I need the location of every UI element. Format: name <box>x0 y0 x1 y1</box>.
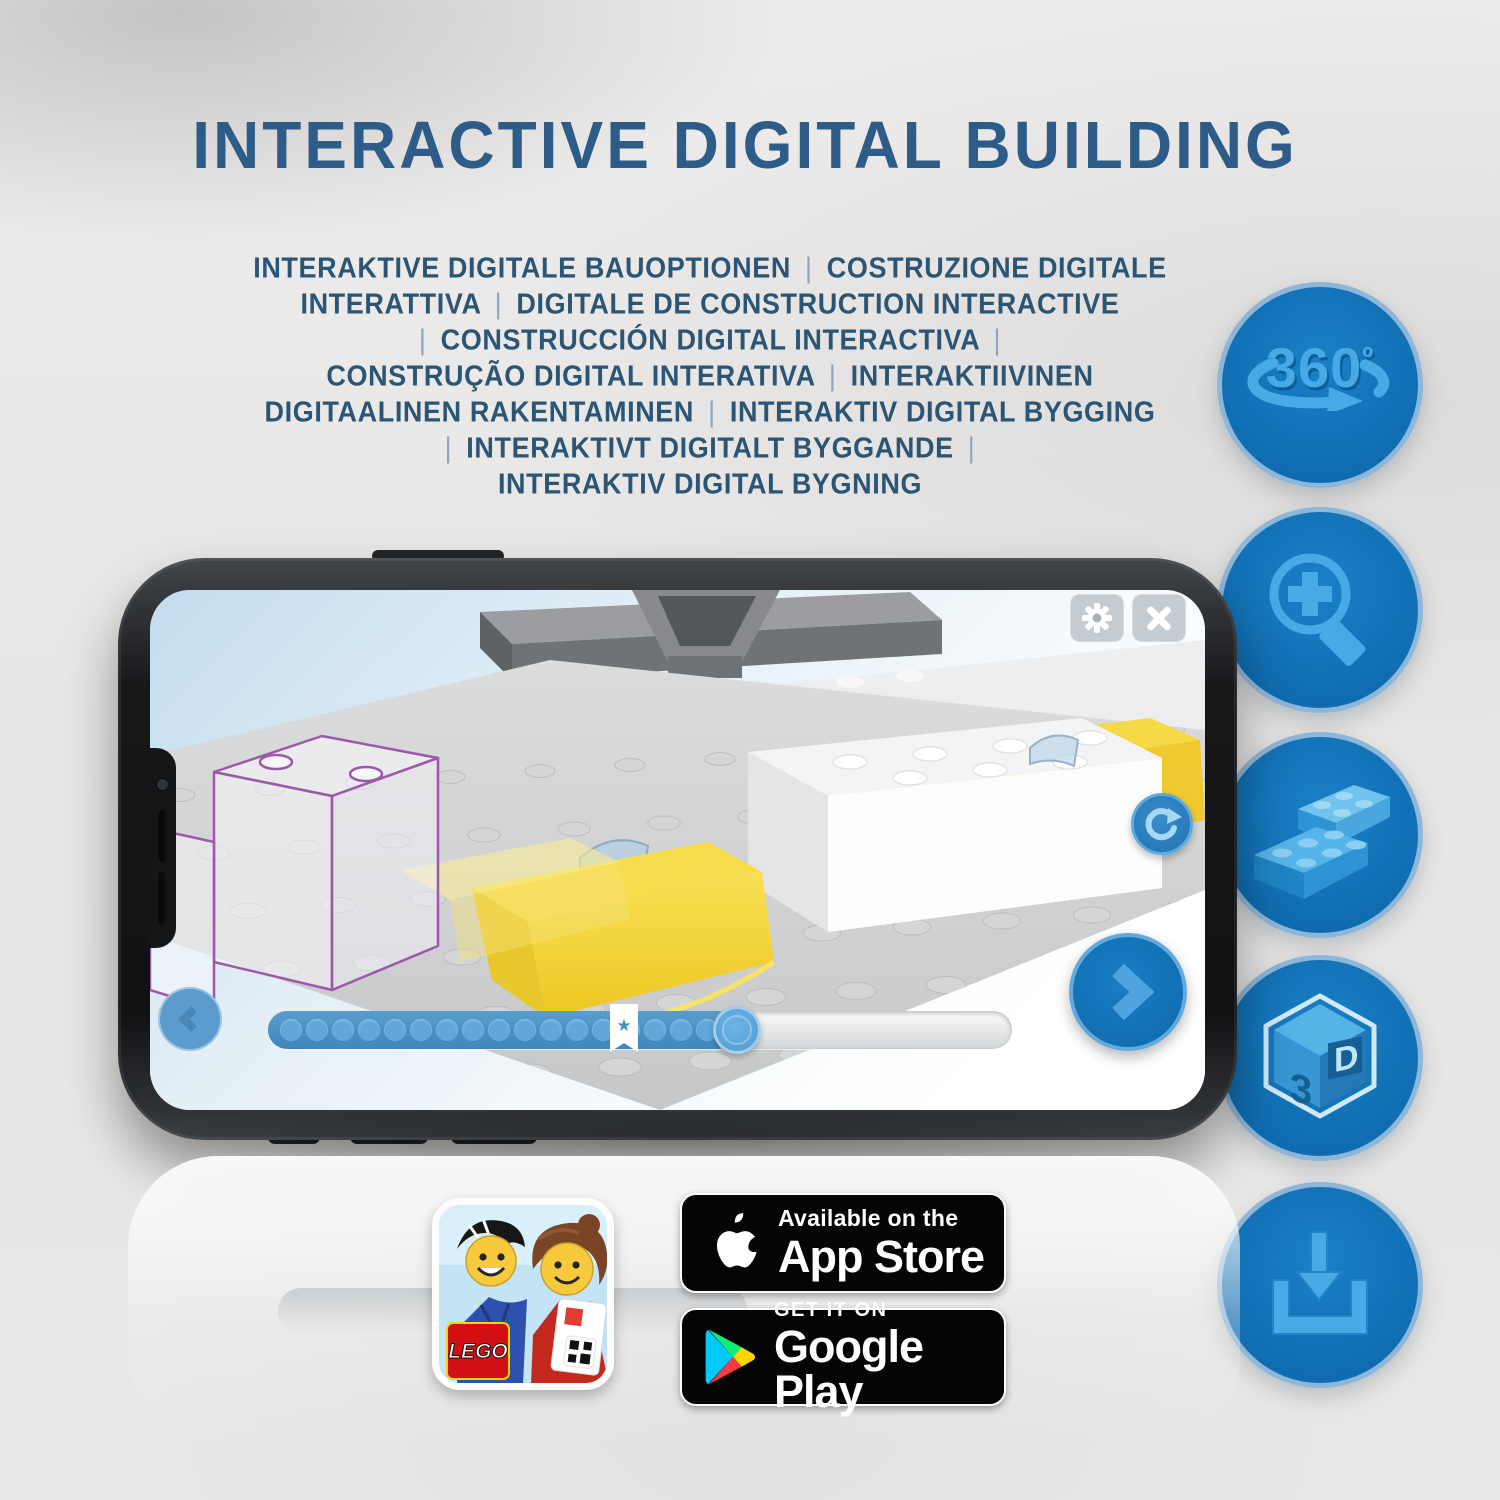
rotate-model-button[interactable] <box>1131 793 1193 855</box>
rotation-arrow-icon <box>1245 359 1395 411</box>
google-play-icon <box>704 1328 756 1386</box>
page-title: INTERACTIVE DIGITAL BUILDING <box>0 107 1490 184</box>
magnifier-plus-icon <box>1252 542 1388 678</box>
lego-app-icon[interactable]: LEGO <box>432 1198 614 1390</box>
slider-segment-dot <box>332 1019 354 1041</box>
download-tray-icon <box>1255 1222 1385 1348</box>
chevron-right-icon <box>1098 962 1158 1022</box>
feature-zoom-icon <box>1217 507 1423 713</box>
next-step-button[interactable] <box>1069 933 1187 1051</box>
svg-text:LEGO: LEGO <box>448 1340 508 1363</box>
google-play-name: Google Play <box>774 1324 1004 1414</box>
marketing-panel: INTERACTIVE DIGITAL BUILDING INTERAKTIVE… <box>0 0 1500 1500</box>
bookmark-star-icon: ★ <box>616 1016 631 1036</box>
app-store-badge[interactable]: Available on the App Store <box>680 1193 1006 1293</box>
bookmark-marker[interactable]: ★ <box>609 1004 639 1058</box>
slider-segment-dot <box>358 1019 380 1041</box>
svg-text:D: D <box>1334 1037 1359 1080</box>
subtitle-line: INTERATTIVA | DIGITALE DE CONSTRUCTION I… <box>205 285 1215 323</box>
close-button[interactable] <box>1132 594 1186 642</box>
svg-text:3: 3 <box>1290 1064 1312 1115</box>
google-play-tagline: GET IT ON <box>774 1300 1004 1320</box>
slider-segment-dot <box>306 1019 328 1041</box>
smartphone: ★ <box>118 558 1237 1140</box>
app-store-tagline: Available on the <box>778 1207 984 1230</box>
3d-cube-icon: 3 D <box>1250 990 1390 1126</box>
slider-fill <box>268 1011 737 1049</box>
feature-brick-icon <box>1217 732 1423 938</box>
slider-segment-dot <box>488 1019 510 1041</box>
lego-bricks-icon <box>1246 765 1394 905</box>
feature-3d-icon: 3 D <box>1217 955 1423 1161</box>
chevron-left-icon <box>173 1002 207 1036</box>
slider-segment-dot <box>670 1019 692 1041</box>
subtitle-line: | CONSTRUCCIÓN DIGITAL INTERACTIVA | <box>205 321 1215 359</box>
slider-segment-dot <box>514 1019 536 1041</box>
slider-segment-dot <box>384 1019 406 1041</box>
settings-button[interactable] <box>1070 594 1124 642</box>
speaker-slit <box>158 810 165 862</box>
subtitle-line: DIGITAALINEN RAKENTAMINEN | INTERAKTIV D… <box>205 393 1215 431</box>
lego-logo: LEGO <box>447 1323 509 1379</box>
feature-download-icon <box>1217 1182 1423 1388</box>
feature-360-icon: 360º <box>1217 282 1423 488</box>
slider-segment-dot <box>566 1019 588 1041</box>
slider-thumb[interactable] <box>713 1006 761 1054</box>
subtitle-line: CONSTRUÇÃO DIGITAL INTERATIVA | INTERAKT… <box>205 357 1215 395</box>
slider-segment-dot <box>280 1019 302 1041</box>
slider-segment-dot <box>644 1019 666 1041</box>
slider-segment-dot <box>410 1019 432 1041</box>
apple-logo-icon <box>704 1210 760 1276</box>
google-play-badge[interactable]: GET IT ON Google Play <box>680 1308 1006 1406</box>
previous-step-button[interactable] <box>158 987 222 1051</box>
speaker-slit-2 <box>158 872 165 924</box>
rotate-icon <box>1142 804 1182 844</box>
multilingual-subtitles: INTERAKTIVE DIGITALE BAUOPTIONEN | COSTR… <box>205 250 1215 502</box>
app-screen: ★ <box>150 590 1205 1110</box>
gear-icon <box>1079 600 1115 636</box>
subtitle-line: INTERAKTIV DIGITAL BYGNING <box>205 465 1215 503</box>
phone-notch <box>150 748 176 948</box>
slider-segment-dot <box>540 1019 562 1041</box>
subtitle-line: | INTERAKTIVT DIGITALT BYGGANDE | <box>205 429 1215 467</box>
slider-segment-dot <box>462 1019 484 1041</box>
slider-segment-dot <box>436 1019 458 1041</box>
app-store-name: App Store <box>778 1234 984 1279</box>
subtitle-line: INTERAKTIVE DIGITALE BAUOPTIONEN | COSTR… <box>205 249 1215 287</box>
build-progress-slider[interactable]: ★ <box>268 1011 1012 1049</box>
lego-minifigures-art: LEGO <box>439 1205 609 1385</box>
front-camera <box>156 778 169 791</box>
